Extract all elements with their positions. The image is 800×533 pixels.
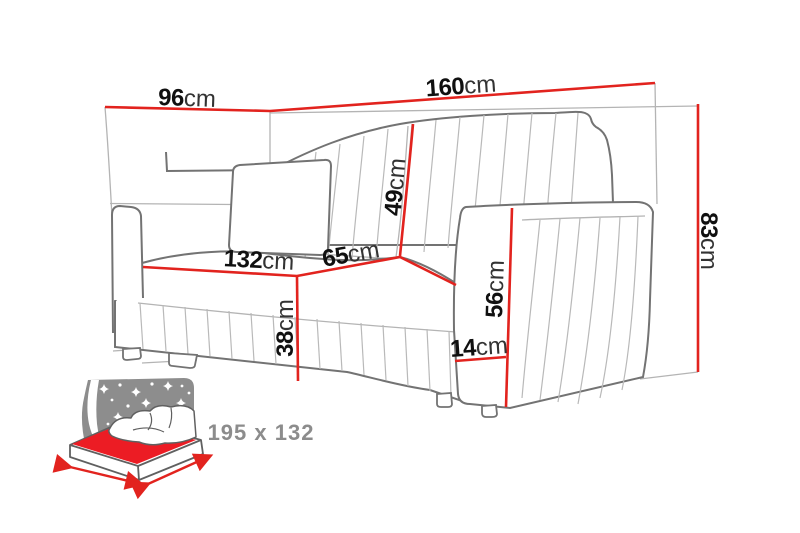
- label-armrest-width: 14cm: [449, 334, 508, 362]
- sofa-line-drawing: [0, 0, 800, 533]
- label-armrest-height: 56cm: [483, 260, 509, 319]
- sofa-dimension-diagram: 96cm 160cm 83cm 49cm 65cm 132cm 38cm 56c…: [0, 0, 800, 533]
- label-seat-height: 38cm: [274, 299, 298, 357]
- left-armrest-fill: [112, 206, 143, 300]
- label-total-depth: 96cm: [158, 86, 217, 112]
- label-seat-width: 132cm: [223, 247, 295, 275]
- label-total-width: 160cm: [425, 73, 497, 102]
- pillow: [229, 160, 331, 255]
- label-backrest-height: 49cm: [382, 157, 411, 217]
- sleeping-function-icon: [70, 378, 210, 484]
- label-sleeping-area-size: 195 x 132: [208, 420, 315, 446]
- label-total-height: 83cm: [696, 212, 720, 270]
